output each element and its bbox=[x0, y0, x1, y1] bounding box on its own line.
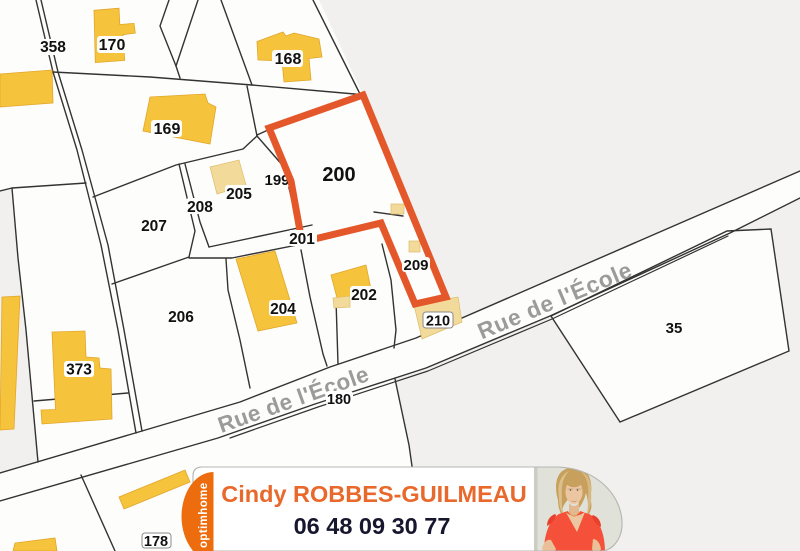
svg-text:06 48 09 30 77: 06 48 09 30 77 bbox=[294, 513, 451, 539]
svg-text:178: 178 bbox=[144, 534, 168, 550]
svg-text:202: 202 bbox=[351, 287, 377, 304]
svg-text:200: 200 bbox=[322, 164, 355, 186]
svg-text:208: 208 bbox=[187, 199, 213, 216]
svg-text:358: 358 bbox=[40, 39, 66, 56]
svg-text:170: 170 bbox=[99, 37, 126, 54]
svg-text:205: 205 bbox=[226, 186, 252, 203]
svg-text:168: 168 bbox=[275, 51, 302, 68]
svg-text:201: 201 bbox=[289, 231, 315, 248]
svg-text:373: 373 bbox=[66, 362, 92, 379]
svg-text:35: 35 bbox=[666, 320, 683, 337]
svg-text:optimhome: optimhome bbox=[198, 482, 210, 548]
svg-text:204: 204 bbox=[270, 301, 296, 318]
svg-text:207: 207 bbox=[141, 218, 167, 235]
svg-text:209: 209 bbox=[403, 257, 428, 274]
svg-text:206: 206 bbox=[168, 309, 194, 326]
svg-text:180: 180 bbox=[327, 392, 351, 408]
svg-text:169: 169 bbox=[154, 121, 181, 138]
svg-text:Cindy ROBBES-GUILMEAU: Cindy ROBBES-GUILMEAU bbox=[221, 481, 527, 507]
svg-text:210: 210 bbox=[426, 314, 450, 330]
